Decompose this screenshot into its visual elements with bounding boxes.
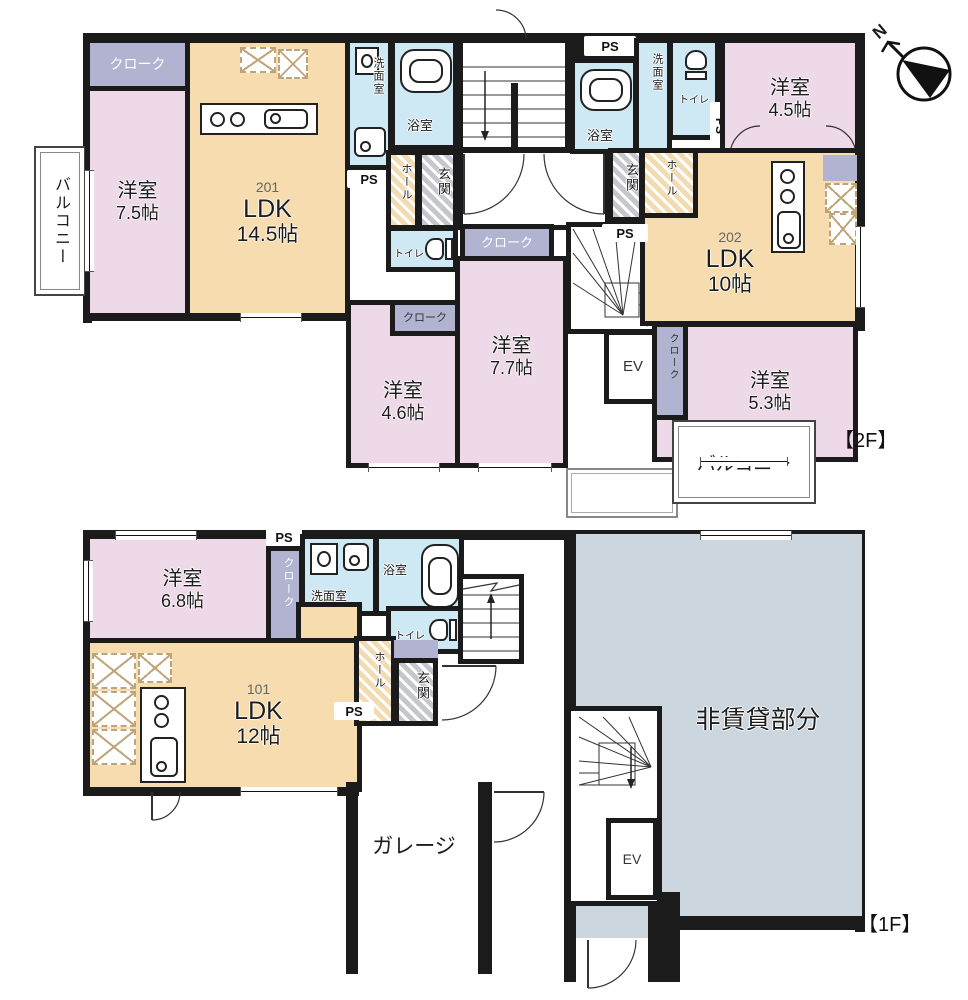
window (368, 463, 440, 472)
garage-label: ガレージ (352, 830, 476, 860)
bedroom-7-7-name: 洋室 (492, 335, 532, 358)
hall-1f-label: ホール (371, 651, 387, 690)
floor-tag-2f: 【2F】 (834, 424, 897, 453)
entrance-1f-label: 玄関 (413, 671, 432, 701)
window (84, 560, 93, 622)
hall-202-label: ホール (663, 159, 679, 198)
closet-5-3: クローク (652, 322, 688, 420)
balcony-void-2f (566, 468, 678, 518)
bath-201: 浴室 (390, 38, 458, 150)
ldk-202-size: 10帖 (708, 273, 752, 297)
bedroom-5-3-size: 5.3帖 (748, 393, 791, 414)
bath-202-label: 浴室 (587, 125, 613, 144)
storage-icon (92, 653, 136, 689)
hall-201: ホール (386, 150, 420, 230)
entrance-202: 玄関 (608, 148, 644, 222)
window (85, 170, 94, 272)
non-rental-label: 非賃貸部分 (660, 700, 856, 736)
ldk-101: 101 LDK 12帖 (85, 638, 362, 792)
ldk-101-name: LDK (234, 697, 283, 726)
ps-1f-top: PS (266, 528, 302, 546)
refrigerator-space (823, 155, 857, 181)
unit-201-number: 201 (256, 179, 279, 195)
ps-202-top: PS (584, 36, 636, 56)
bedroom-6-8-size: 6.8帖 (161, 591, 204, 612)
toilet-icon (682, 50, 710, 80)
door-arc-icon (458, 148, 610, 230)
balcony-left-2f: バルコニー (34, 146, 86, 296)
elevator-2f-label: EV (609, 335, 657, 399)
window (240, 787, 338, 796)
floor-plan: バルコニー クローク 洋室 7.5帖 201 LDK 14.5帖 洗面室 PS … (0, 0, 968, 1000)
toilet-202-label: トイレ (679, 91, 709, 106)
bedroom-6-8: 洋室 6.8帖 (85, 534, 280, 646)
closet-1f-label: クローク (280, 557, 296, 609)
window (115, 531, 197, 540)
wall-garage-right (478, 782, 492, 974)
storage-icon (240, 47, 276, 73)
bedroom-7-5-size: 7.5帖 (116, 203, 159, 224)
unit-202-number: 202 (718, 229, 741, 245)
washer-icon (310, 543, 338, 575)
door-arc-icon (148, 790, 182, 826)
washroom-202: 洗面室 (634, 38, 672, 154)
hall-202: ホール (640, 148, 698, 218)
elevator-1f-label: EV (611, 823, 653, 895)
ldk-202-name: LDK (706, 245, 755, 274)
balcony-left-label: バルコニー (48, 176, 72, 266)
closet-4-6-label: クローク (395, 305, 455, 331)
entrance-202-label: 玄関 (622, 163, 641, 193)
bathtub-icon (400, 49, 452, 93)
bath-1f-label: 浴室 (383, 561, 407, 578)
wall-garage-left (346, 782, 358, 974)
bedroom-4-5-name: 洋室 (770, 77, 810, 100)
bath-202: 浴室 (570, 58, 638, 154)
closet-4-6: クローク (390, 300, 460, 336)
toilet-icon (425, 235, 453, 263)
ldk-201-size: 14.5帖 (237, 223, 299, 247)
entrance-1f: 玄関 (394, 658, 438, 726)
door-arc-icon (492, 14, 532, 40)
bedroom-4-6-name: 洋室 (383, 380, 423, 403)
door-arc-icon (492, 788, 548, 848)
toilet-201-label: トイレ (394, 245, 424, 260)
storage-icon (278, 49, 308, 79)
closet-5-3-label: クローク (665, 333, 680, 381)
bathtub-icon (580, 69, 632, 111)
entrance-201-label: 玄関 (434, 167, 453, 197)
ps-201: PS (347, 170, 391, 188)
vanity-icon (354, 127, 386, 157)
ps-1f-mid: PS (334, 702, 374, 720)
stairs-1f-up (458, 574, 524, 664)
entrance-201: 玄関 (417, 150, 458, 230)
bedroom-4-5-size: 4.5帖 (768, 100, 811, 121)
bedroom-5-3-name: 洋室 (750, 370, 790, 393)
closet-201-label: クローク (90, 43, 185, 86)
floor-tag-1f: 【1F】 (858, 908, 921, 937)
bedroom-7-7-size: 7.7帖 (490, 358, 533, 379)
window (700, 531, 792, 540)
ldk-201-name: LDK (243, 195, 292, 224)
storage-icon (92, 729, 136, 765)
elevator-1f: EV (606, 818, 658, 900)
washroom-201-label: 洗面室 (370, 57, 386, 96)
stairs-2f-top (458, 38, 570, 152)
compass-icon (880, 30, 956, 106)
stairs-icon (463, 579, 519, 659)
storage-icon (92, 691, 136, 727)
ldk-201: 201 LDK 14.5帖 (185, 38, 350, 318)
door-arc-icon (582, 938, 642, 994)
stairs-icon (463, 43, 565, 147)
bedroom-7-7: 洋室 7.7帖 (455, 256, 568, 468)
closet-201: クローク (85, 38, 190, 91)
window (240, 313, 302, 322)
bathtub-icon (421, 544, 459, 608)
bedroom-7-5-name: 洋室 (118, 180, 158, 203)
bedroom-4-6-size: 4.6帖 (381, 403, 424, 424)
door-arc-icon (438, 662, 502, 728)
bedroom-7-5-201: 洋室 7.5帖 (85, 86, 190, 318)
ldk-101-size: 12帖 (236, 725, 280, 749)
window (478, 463, 552, 472)
washroom-202-label: 洗面室 (649, 53, 665, 92)
window (856, 226, 865, 308)
toilet-201: トイレ (386, 226, 458, 272)
vanity-icon (343, 543, 369, 571)
ps-202-bottom: PS (602, 224, 648, 242)
bath-201-label: 浴室 (407, 115, 433, 134)
bedroom-6-8-name: 洋室 (163, 568, 203, 591)
bath-1f: 浴室 (374, 534, 464, 616)
window (700, 457, 788, 466)
hall-201-label: ホール (398, 163, 414, 202)
wall-nr-bottom (652, 916, 862, 930)
unit-101-number: 101 (247, 681, 270, 697)
stairs-icon (573, 715, 659, 799)
